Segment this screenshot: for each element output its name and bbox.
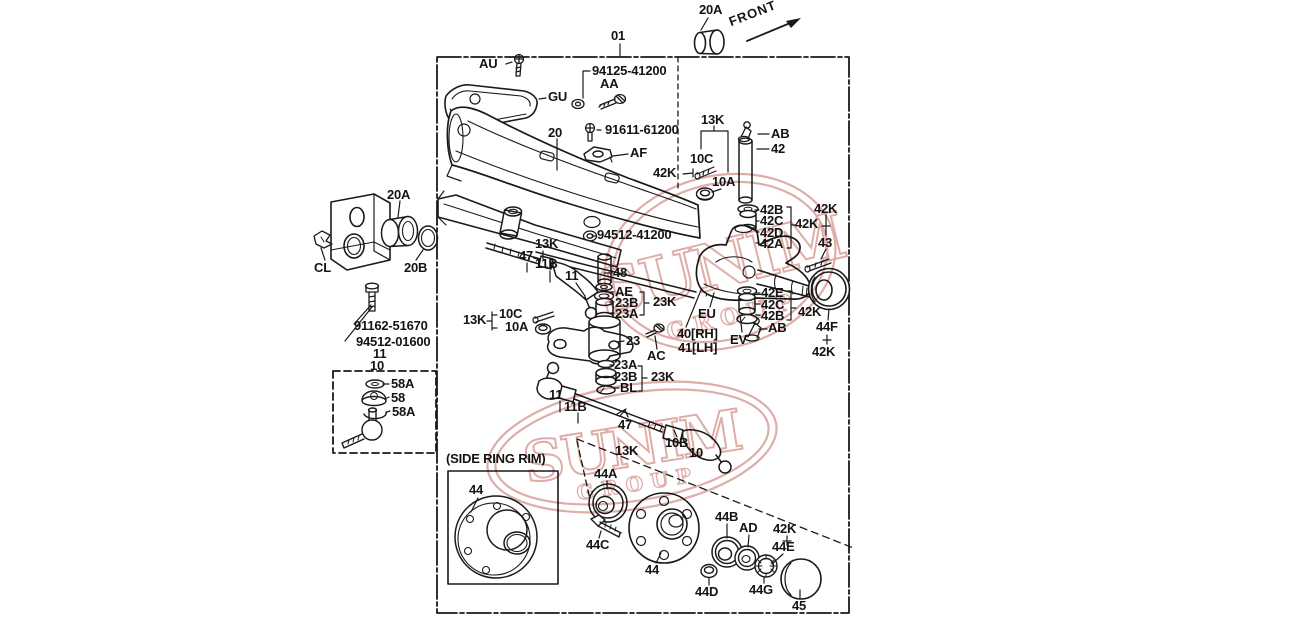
part-label-eu: EU xyxy=(698,307,716,321)
part-label-42a-u: 42A xyxy=(760,237,783,251)
part-label-ad: AD xyxy=(739,521,757,535)
part-label-23k-u: 23K xyxy=(653,295,676,309)
part-label-44c: 44C xyxy=(586,538,609,552)
part-label-10b: 10B xyxy=(665,436,688,450)
part-label-42k-low: 42K xyxy=(798,305,821,319)
part-label-20a-left: 20A xyxy=(387,188,410,202)
part-label-20a-top: 20A xyxy=(699,3,722,17)
part-label-11-b: 11 xyxy=(549,388,562,402)
part-label-11b-u: 11B xyxy=(535,257,558,271)
part-label-13k-top: 13K xyxy=(701,113,724,127)
part-label-42k-arrow: 42K xyxy=(653,166,676,180)
part-label-44e: 44E xyxy=(772,540,795,554)
part-label-58a-1: 58A xyxy=(391,377,414,391)
part-label-41lh: 41[LH] xyxy=(678,341,717,355)
part-label-42k-tr: 42K xyxy=(814,202,837,216)
part-label-11b-b: 11B xyxy=(564,400,587,414)
part-label-10c-top: 10C xyxy=(690,152,713,166)
part-label-42b-2: 42B xyxy=(761,309,784,323)
part-label-58: 58 xyxy=(391,391,405,405)
part-label-23k-l: 23K xyxy=(651,370,674,384)
part-label-13k-m: 13K xyxy=(535,237,558,251)
part-label-10a-top: 10A xyxy=(712,175,735,189)
part-label-cl: CL xyxy=(314,261,331,275)
part-label-pn-91162-51670: 91162-51670 xyxy=(354,319,428,333)
part-label-front: FRONT xyxy=(727,0,778,29)
part-label-42: 42 xyxy=(771,142,785,156)
part-label-42k-b: 42K xyxy=(773,522,796,536)
part-label-aa: AA xyxy=(600,77,618,91)
part-label-pn-94512-01600: 94512-01600 xyxy=(356,335,430,349)
part-label-20: 20 xyxy=(548,126,562,140)
part-label-44d: 44D xyxy=(695,585,718,599)
part-label-44g: 44G xyxy=(749,583,773,597)
part-label-40rh: 40[RH] xyxy=(677,327,718,341)
part-label-42k-44f: 42K xyxy=(812,345,835,359)
part-label-13k-l: 13K xyxy=(463,313,486,327)
label-layer: 0120AFRONTAU94125-41200AAGU2091611-61200… xyxy=(0,0,1297,621)
part-label-23: 23 xyxy=(626,334,640,348)
part-label-pn-94512-41200: 94512-41200 xyxy=(597,228,671,242)
part-label-bl: BL xyxy=(620,381,637,395)
part-label-gu: GU xyxy=(548,90,567,104)
part-label-47-b: 47 xyxy=(618,418,632,432)
part-label-10-left: 10 xyxy=(370,359,384,373)
part-label-au: AU xyxy=(479,57,497,71)
part-label-ev: EV xyxy=(730,333,747,347)
part-label-47-u: 47 xyxy=(519,249,533,263)
part-label-af: AF xyxy=(630,146,647,160)
part-label-pn-91611-61200: 91611-61200 xyxy=(605,123,679,137)
part-label-43: 43 xyxy=(818,236,832,250)
part-label-44b: 44B xyxy=(715,510,738,524)
part-label-10a-l: 10A xyxy=(505,320,528,334)
part-label-42k-stack: 42K xyxy=(795,217,818,231)
part-label-11-u: 11 xyxy=(565,269,578,283)
part-label-48: 48 xyxy=(613,266,627,280)
part-label-44f: 44F xyxy=(816,320,838,334)
part-label-13k-b: 13K xyxy=(615,444,638,458)
part-label-23a-u: 23A xyxy=(615,307,638,321)
parts-diagram-page: 0120AFRONTAU94125-41200AAGU2091611-61200… xyxy=(0,0,1297,621)
part-label-44-hub: 44 xyxy=(645,563,659,577)
part-label-ab-top: AB xyxy=(771,127,789,141)
part-label-45: 45 xyxy=(792,599,806,613)
part-label-20b: 20B xyxy=(404,261,427,275)
part-label-ac: AC xyxy=(647,349,665,363)
part-label-10-b: 10 xyxy=(689,446,703,460)
part-label-srr: (SIDE RING RIM) xyxy=(446,452,546,466)
part-label-58a-2: 58A xyxy=(392,405,415,419)
part-label-01: 01 xyxy=(611,29,625,43)
part-label-44a: 44A xyxy=(594,467,617,481)
part-label-44-box: 44 xyxy=(469,483,483,497)
part-label-ab-l: AB xyxy=(768,321,786,335)
